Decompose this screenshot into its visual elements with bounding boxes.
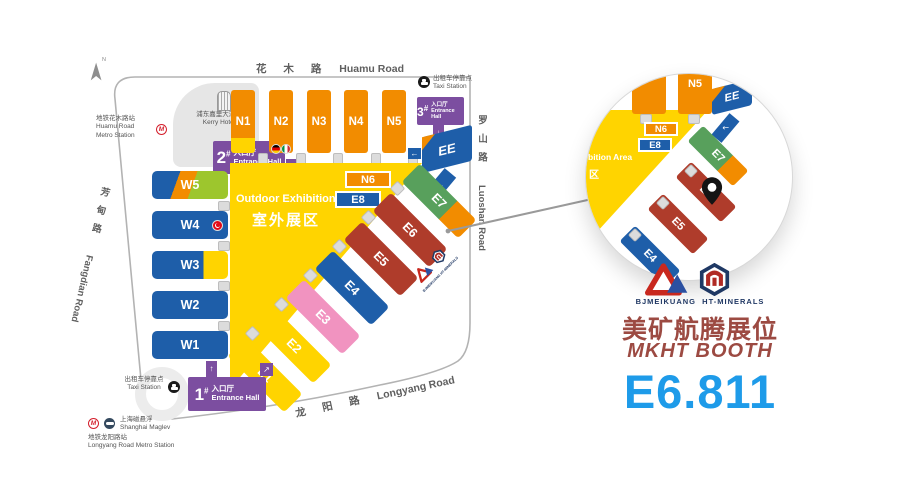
mag-north-hall <box>632 73 666 114</box>
mag-n6-badge: N6 <box>644 122 678 136</box>
booth-title-en: MKHT BOOTH <box>600 340 800 363</box>
mag-hall-ee: EE <box>712 79 752 115</box>
mag-north-hall-n5: N5 <box>678 73 712 114</box>
booth-number: E6.811 <box>590 364 810 419</box>
mag-e8-badge: E8 <box>638 138 672 152</box>
magnifier-pointer-line <box>0 0 900 500</box>
booth-location-pin-icon <box>701 176 723 206</box>
hall-connector <box>688 114 700 124</box>
ht-minerals-logo <box>699 263 730 296</box>
logo-caption: BJMEIKUANG HT-MINERALS <box>610 297 790 306</box>
bjmeikuang-logo <box>645 262 691 296</box>
mag-area-text-zh: 区 <box>589 166 599 181</box>
magnifier-circle: bition Area 区 N5 EE ↙ N6 E8 E7 E6 E5 E4 <box>585 73 793 281</box>
mag-area-text: bition Area <box>588 152 632 162</box>
sniec-booth-location-graphic: N 花 木 路 Huamu Road 罗山路 Luoshan Road 芳甸路 … <box>0 0 900 500</box>
